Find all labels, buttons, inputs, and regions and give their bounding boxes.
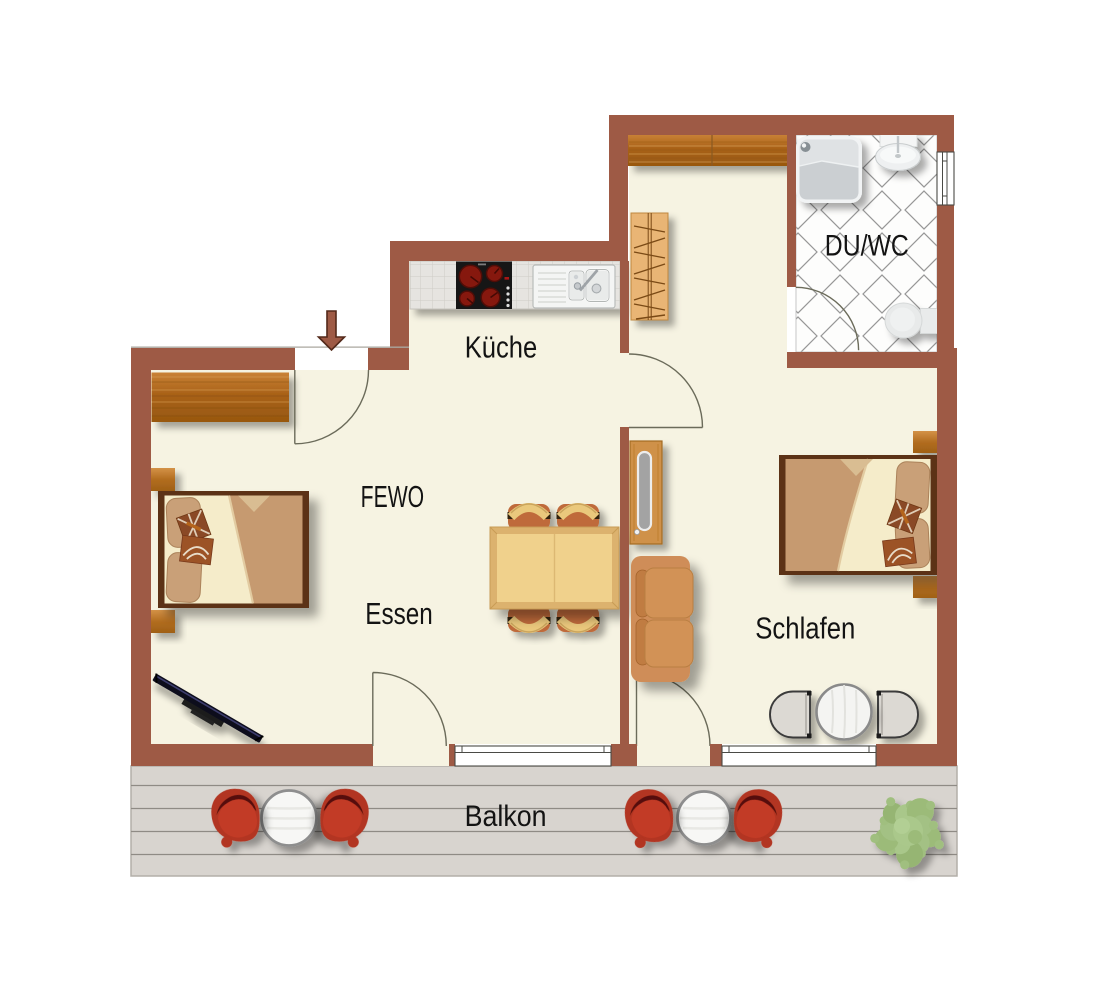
svg-text:Schlafen: Schlafen <box>755 610 855 645</box>
svg-text:Balkon: Balkon <box>465 800 547 833</box>
svg-text:Küche: Küche <box>465 330 538 365</box>
svg-text:Essen: Essen <box>365 596 433 631</box>
svg-text:DU/WC: DU/WC <box>825 229 909 262</box>
svg-text:FEWO: FEWO <box>361 479 425 514</box>
